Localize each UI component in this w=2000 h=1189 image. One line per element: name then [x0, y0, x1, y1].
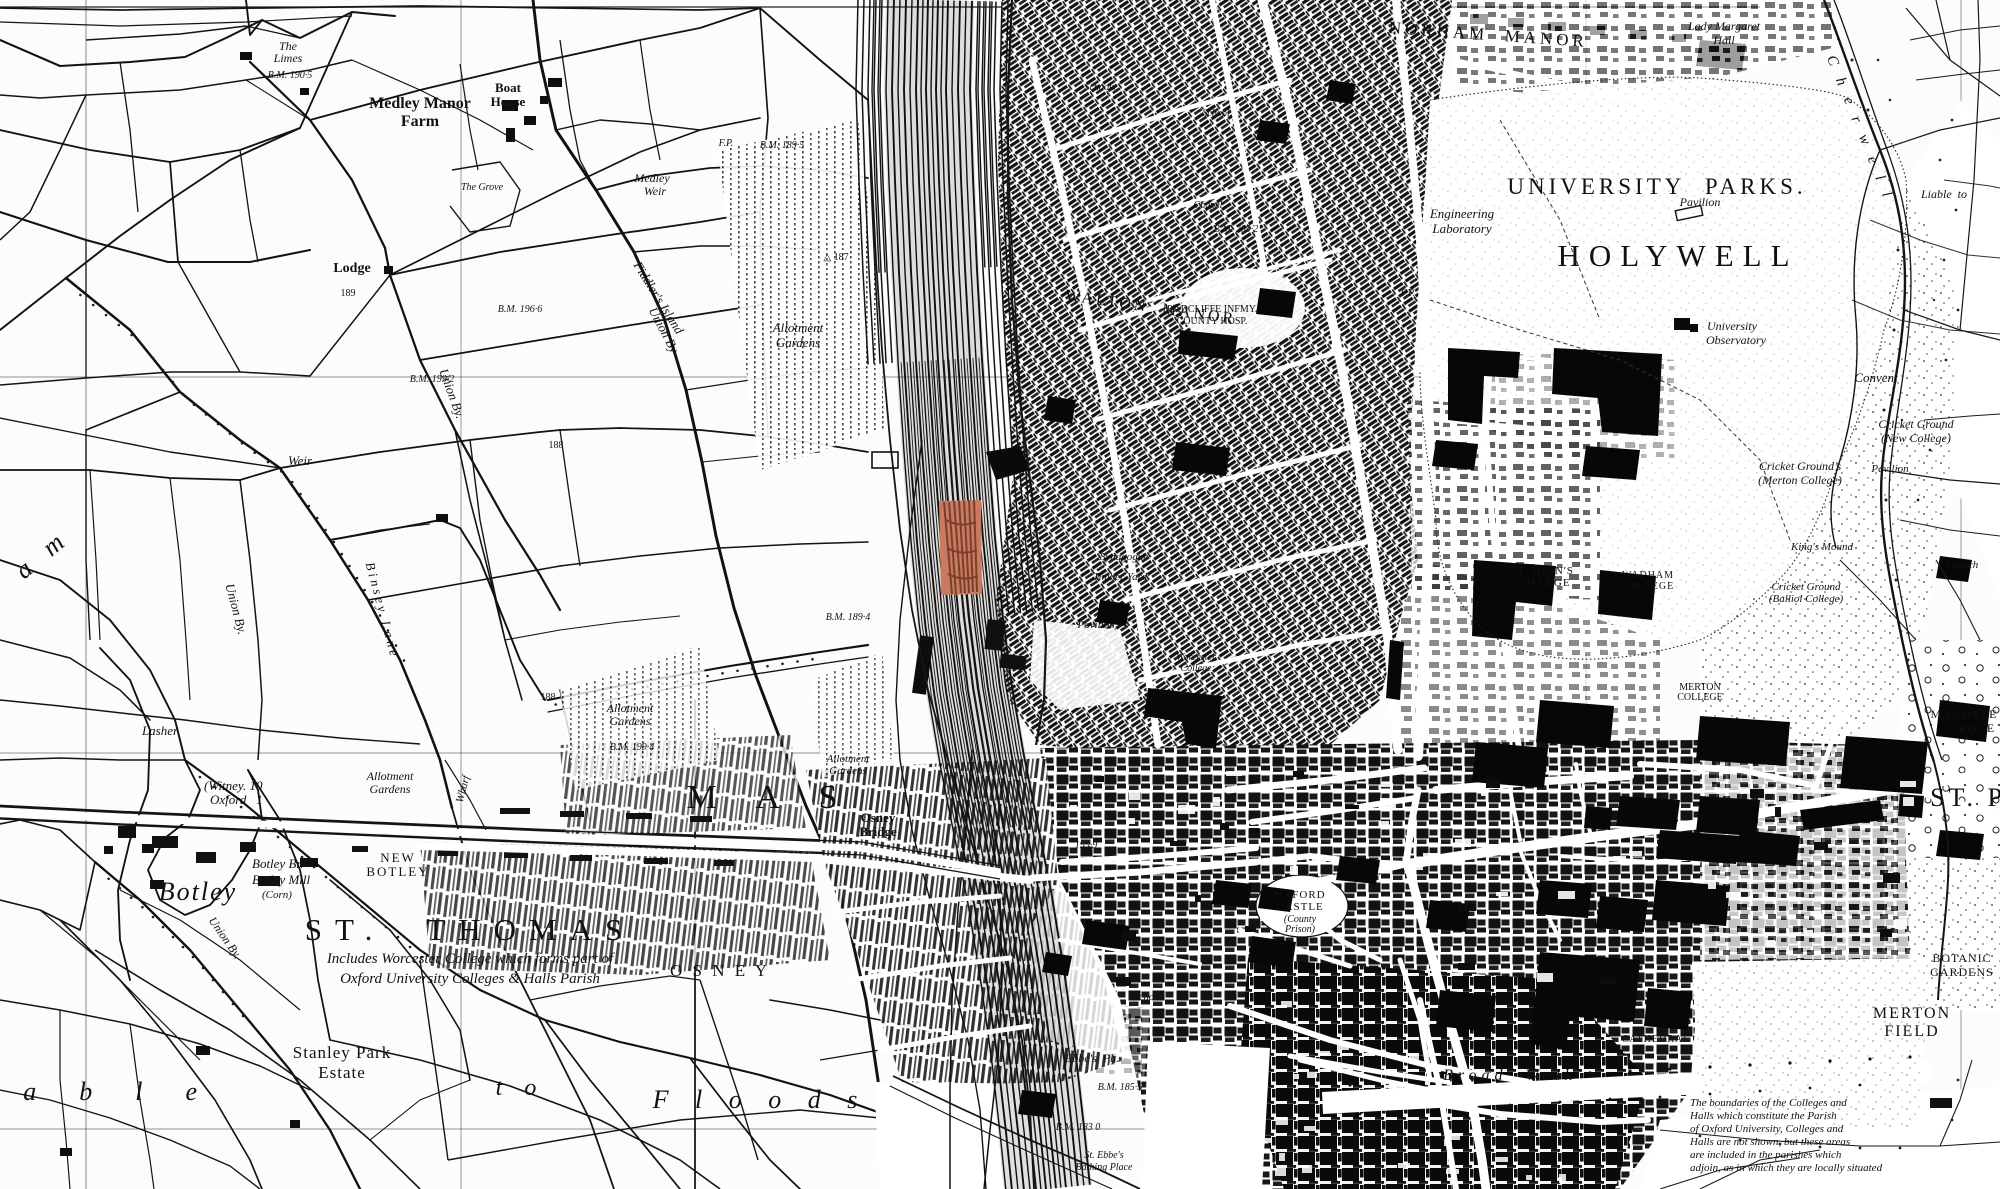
svg-text:Osney: Osney — [861, 810, 896, 825]
svg-text:OXFORD: OXFORD — [1274, 889, 1325, 901]
svg-text:B.M. 189·5: B.M. 189·5 — [760, 140, 804, 151]
svg-text:Observatory: Observatory — [1706, 333, 1767, 347]
svg-text:School: School — [1133, 991, 1163, 1003]
svg-text:M A S: M A S — [687, 779, 854, 816]
svg-text:Medley Manor: Medley Manor — [369, 95, 471, 112]
svg-text:Allotment: Allotment — [826, 753, 871, 765]
svg-text:are included in the parishes w: are included in the parishes which — [1690, 1149, 1842, 1161]
svg-text:ST. THOMAS: ST. THOMAS — [305, 912, 635, 947]
svg-text:GARDENS: GARDENS — [1930, 965, 1994, 979]
svg-text:King's Mound: King's Mound — [1790, 541, 1853, 553]
svg-text:Broad Walk: Broad Walk — [1443, 1067, 1577, 1084]
svg-text:Cricket Ground’s: Cricket Ground’s — [1759, 459, 1842, 473]
svg-text:(New College): (New College) — [1881, 431, 1951, 445]
svg-text:MAGDALE: MAGDALE — [1931, 707, 1998, 721]
svg-text:Cricket Ground: Cricket Ground — [1772, 581, 1841, 593]
svg-text:Chapel: Chapel — [1194, 200, 1223, 211]
svg-text:Church: Church — [1946, 559, 1979, 571]
svg-text:COLLEGE: COLLEGE — [1513, 577, 1570, 589]
svg-text:Oxford 1: Oxford 1 — [210, 792, 263, 807]
svg-text:CATHEDRAL: CATHEDRAL — [1622, 1034, 1690, 1045]
svg-text:188: 188 — [549, 440, 564, 451]
svg-text:Ebbe's Ph.: Ebbe's Ph. — [1064, 1051, 1119, 1065]
svg-text:BOTLEY: BOTLEY — [366, 864, 429, 879]
svg-text:Limes: Limes — [273, 51, 303, 65]
svg-text:Estate: Estate — [318, 1063, 366, 1082]
svg-text:Gardens: Gardens — [370, 782, 411, 796]
svg-text:Lasher: Lasher — [141, 723, 179, 738]
svg-text:Botley: Botley — [159, 877, 237, 906]
svg-text:Weir: Weir — [288, 453, 313, 468]
svg-text:B.M. 199·4: B.M. 199·4 — [610, 742, 654, 753]
svg-text:St. Ebbe's: St. Ebbe's — [1084, 1150, 1123, 1161]
svg-text:B.M. 199·2: B.M. 199·2 — [410, 374, 454, 385]
svg-text:FIELD: FIELD — [1884, 1023, 1939, 1040]
svg-text:Medley: Medley — [633, 171, 670, 185]
svg-text:School: School — [1202, 108, 1229, 119]
svg-text:GROVE: GROVE — [1949, 721, 1995, 735]
svg-text:199·9: 199·9 — [1075, 840, 1098, 851]
svg-text:B.M. 185·5: B.M. 185·5 — [1098, 1082, 1142, 1093]
svg-text:College: College — [1180, 663, 1212, 674]
svg-text:COUNTY HOSP.: COUNTY HOSP. — [1177, 316, 1248, 327]
svg-text:Botley Br.: Botley Br. — [252, 856, 303, 871]
svg-text:Botley Mill: Botley Mill — [252, 872, 311, 887]
svg-text:Timber Yard: Timber Yard — [1093, 571, 1147, 583]
svg-text:△ 187: △ 187 — [823, 252, 848, 263]
svg-text:Cricket Ground: Cricket Ground — [1878, 417, 1954, 431]
svg-text:F l o o d s: F l o o d s — [652, 1085, 868, 1114]
svg-text:Lady Margaret: Lady Margaret — [1687, 19, 1761, 33]
svg-text:Synagogue: Synagogue — [1100, 551, 1148, 563]
svg-text:t o: t o — [496, 1075, 545, 1101]
svg-text:NEW: NEW — [380, 850, 416, 865]
svg-text:O S N E Y: O S N E Y — [670, 961, 770, 980]
svg-text:Convent: Convent — [1854, 370, 1898, 385]
svg-text:189: 189 — [341, 288, 356, 299]
svg-text:Boat: Boat — [495, 80, 522, 95]
svg-text:i a b l e: i a b l e — [0, 1077, 207, 1106]
svg-text:Stanley Park: Stanley Park — [293, 1043, 391, 1062]
svg-text:Gardens: Gardens — [610, 714, 651, 728]
svg-text:Schools: Schools — [1084, 82, 1115, 93]
svg-text:Includes Worcester College whi: Includes Worcester College which forms p… — [326, 951, 615, 967]
svg-text:F.P.: F.P. — [718, 138, 734, 149]
svg-text:B.M. 209·2: B.M. 209·2 — [1214, 224, 1258, 235]
svg-text:of Oxford University, Colleges: of Oxford University, Colleges and — [1690, 1123, 1844, 1135]
svg-text:Gardens: Gardens — [776, 335, 820, 350]
svg-text:Halls which constitute the Par: Halls which constitute the Parish — [1689, 1110, 1837, 1122]
svg-text:Farm: Farm — [401, 113, 440, 130]
svg-text:Weir: Weir — [644, 184, 667, 198]
svg-text:University: University — [1707, 319, 1758, 333]
svg-text:UNIVERSITY PARKS.: UNIVERSITY PARKS. — [1507, 174, 1806, 199]
svg-text:Bathing Place: Bathing Place — [1076, 1162, 1133, 1173]
svg-text:COLLEGE: COLLEGE — [1622, 581, 1675, 592]
svg-text:Pavilion: Pavilion — [1679, 195, 1721, 209]
svg-text:RADCLIFFE INFMY.: RADCLIFFE INFMY. — [1167, 304, 1257, 315]
svg-text:Pavilion: Pavilion — [1870, 463, 1909, 475]
svg-text:Gardens: Gardens — [829, 765, 866, 777]
svg-text:House: House — [491, 94, 526, 109]
svg-text:Allotment: Allotment — [366, 769, 414, 783]
svg-text:ST. P: ST. P — [1930, 783, 2000, 812]
svg-text:Engineering: Engineering — [1429, 206, 1495, 221]
svg-text:B.M. 196·6: B.M. 196·6 — [498, 304, 542, 315]
svg-text:Allotment: Allotment — [772, 320, 824, 335]
svg-text:Lodge: Lodge — [333, 261, 370, 276]
svg-text:HOLYWELL: HOLYWELL — [1557, 238, 1798, 273]
svg-text:Allotment: Allotment — [606, 701, 654, 715]
svg-text:(Balliol College): (Balliol College) — [1769, 593, 1844, 605]
svg-text:WADHAM: WADHAM — [1622, 570, 1674, 581]
svg-text:Halls are not shown, but these: Halls are not shown, but these areas — [1689, 1136, 1850, 1148]
svg-text:The boundaries of the Colleges: The boundaries of the Colleges and — [1690, 1097, 1847, 1109]
svg-text:The Grove: The Grove — [461, 182, 504, 193]
svg-text:B.M. 190·5: B.M. 190·5 — [268, 70, 312, 81]
svg-text:Oxford University Colleges & H: Oxford University Colleges & Halls Paris… — [340, 971, 600, 987]
svg-text:Prison): Prison) — [1284, 924, 1316, 935]
svg-text:(Corn): (Corn) — [262, 889, 292, 901]
svg-text:CASTLE: CASTLE — [1276, 901, 1324, 913]
svg-text:BOTANIC: BOTANIC — [1932, 951, 1991, 965]
svg-text:Laboratory: Laboratory — [1431, 221, 1491, 236]
svg-text:Hall: Hall — [1712, 33, 1735, 47]
svg-text:F.P.: F.P. — [1400, 288, 1416, 299]
svg-text:MERTON: MERTON — [1873, 1005, 1951, 1022]
svg-text:ST. JOHN'S: ST. JOHN'S — [1510, 565, 1574, 577]
svg-text:COLLEGE: COLLEGE — [1677, 692, 1723, 703]
svg-text:B.M. 189·4: B.M. 189·4 — [826, 612, 870, 623]
svg-text:adjoin, as in which they are l: adjoin, as in which they are locally sit… — [1690, 1162, 1883, 1174]
svg-text:Bridge: Bridge — [859, 824, 897, 839]
svg-text:Liable to: Liable to — [1920, 187, 1967, 201]
svg-text:Worcester: Worcester — [1176, 652, 1216, 663]
svg-text:Pavilion: Pavilion — [1076, 619, 1115, 631]
svg-text:188: 188 — [541, 692, 556, 703]
svg-text:(Witney. 10: (Witney. 10 — [204, 778, 263, 793]
svg-text:(Merton College): (Merton College) — [1758, 473, 1842, 487]
svg-text:B.M. 183 0: B.M. 183 0 — [1056, 1122, 1100, 1133]
